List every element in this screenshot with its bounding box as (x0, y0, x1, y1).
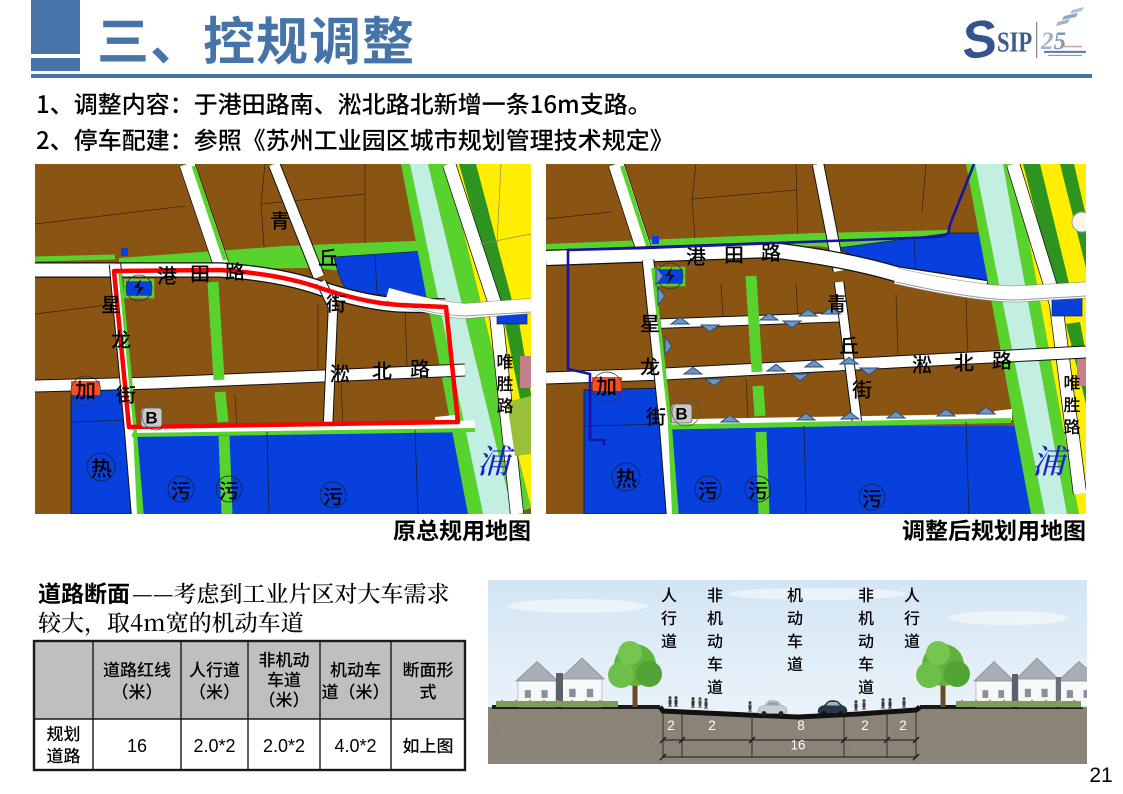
svg-text:B: B (145, 409, 157, 428)
svg-text:8: 8 (797, 718, 805, 733)
svg-text:2.0*2: 2.0*2 (193, 736, 235, 756)
svg-text:2: 2 (667, 718, 675, 733)
svg-text:SIP: SIP (997, 26, 1032, 58)
svg-text:B: B (675, 405, 687, 424)
svg-text:4.0*2: 4.0*2 (334, 736, 376, 756)
svg-text:2.0*2: 2.0*2 (263, 736, 305, 756)
svg-text:2: 2 (861, 718, 869, 733)
svg-text:2: 2 (899, 718, 907, 733)
svg-text:21: 21 (1089, 764, 1112, 787)
svg-text:2: 2 (708, 718, 716, 733)
svg-text:16: 16 (790, 738, 805, 753)
svg-text:16: 16 (127, 736, 147, 756)
